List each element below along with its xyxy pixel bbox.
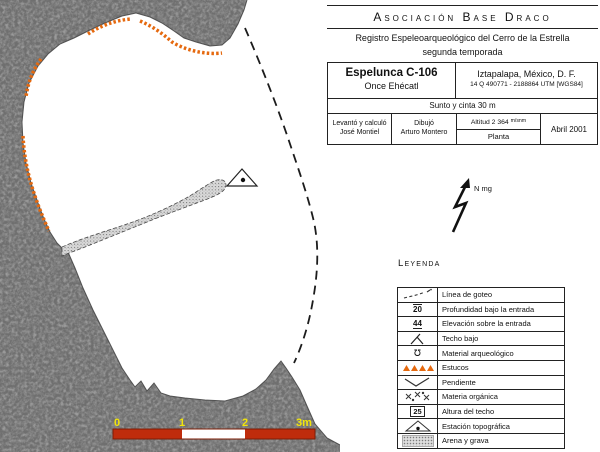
map-title-line1: Registro Espeleoarqueológico del Cerro d… bbox=[327, 31, 598, 45]
legend-row: Estación topográfica bbox=[398, 418, 564, 433]
altitude-view-cell: Altitud 2 364 m/snm Planta bbox=[457, 114, 541, 144]
survey-station-icon bbox=[398, 419, 438, 433]
cave-map: 0 1 2 3m bbox=[0, 0, 340, 452]
map-title: Registro Espeleoarqueológico del Cerro d… bbox=[327, 29, 598, 63]
legend-label: Profundidad bajo la entrada bbox=[438, 305, 564, 314]
organic-matter-icon bbox=[398, 390, 438, 404]
legend-table: Línea de goteo 20 Profundidad bajo la en… bbox=[397, 287, 565, 449]
scale-label-3m: 3m bbox=[296, 417, 312, 429]
ceiling-height-number: 25 bbox=[410, 406, 424, 417]
legend-label: Materia orgánica bbox=[438, 392, 564, 401]
organization-title: Asociación Base Draco bbox=[327, 5, 598, 29]
legend-label: Arena y grava bbox=[438, 436, 564, 445]
north-arrow: N mg bbox=[443, 176, 513, 238]
cave-name-cell: Espelunca C-106 Once Ehécatl bbox=[328, 63, 456, 98]
legend-row: Línea de goteo bbox=[398, 288, 564, 302]
slope-icon bbox=[398, 376, 438, 390]
north-arrow-head bbox=[460, 178, 470, 188]
legend-label: Pendiente bbox=[438, 378, 564, 387]
scale-label-1: 1 bbox=[179, 417, 185, 429]
legend-row: 44 Elevación sobre la entrada bbox=[398, 316, 564, 331]
legend-label: Estucos bbox=[438, 363, 564, 372]
surveyor-label: Levantó y calculó bbox=[328, 119, 391, 128]
surveyor-cell: Levantó y calculó José Montiel bbox=[328, 114, 392, 144]
legend-heading: Leyenda bbox=[398, 258, 440, 269]
elevation-number: 44 bbox=[413, 319, 422, 329]
altitude-unit: m/snm bbox=[511, 118, 527, 124]
view-type: Planta bbox=[457, 130, 540, 144]
cave-alt-name: Once Ehécatl bbox=[328, 80, 455, 92]
title-block: Asociación Base Draco Registro Espeleoar… bbox=[327, 0, 598, 145]
map-title-line2: segunda temporada bbox=[327, 45, 598, 59]
legend-label: Altura del techo bbox=[438, 407, 564, 416]
low-ceiling-icon bbox=[398, 332, 438, 346]
sand-and-gravel-icon bbox=[398, 434, 438, 448]
legend-label: Material arqueológico bbox=[438, 349, 564, 358]
drip-line-icon bbox=[398, 288, 438, 302]
location-cell: Iztapalapa, México, D. F. 14 Q 490771 - … bbox=[456, 63, 597, 98]
legend-row: Materia orgánica bbox=[398, 389, 564, 404]
depth-below-entrance-icon: 20 bbox=[398, 303, 438, 317]
legend-row: 25 Altura del techo bbox=[398, 404, 564, 419]
legend-row: Pendiente bbox=[398, 375, 564, 390]
legend-label: Techo bajo bbox=[438, 334, 564, 343]
archaeological-material-icon: ℧ bbox=[398, 346, 438, 360]
scale-label-0: 0 bbox=[114, 417, 120, 429]
legend-row: 20 Profundidad bajo la entrada bbox=[398, 302, 564, 317]
legend-row: ℧ Material arqueológico bbox=[398, 345, 564, 360]
legend-row: Techo bajo bbox=[398, 331, 564, 346]
legend-row: Estucos bbox=[398, 360, 564, 375]
north-arrow-bolt bbox=[453, 183, 467, 232]
altitude: Altitud 2 364 m/snm bbox=[457, 114, 540, 130]
drawer-label: Dibujó bbox=[392, 119, 456, 128]
scale-label-2: 2 bbox=[242, 417, 248, 429]
altitude-value: Altitud 2 364 bbox=[471, 119, 509, 126]
cave-name: Espelunca C-106 bbox=[328, 67, 455, 80]
drawer-name: Arturo Montero bbox=[392, 128, 456, 137]
elevation-above-entrance-icon: 44 bbox=[398, 317, 438, 331]
legend-label: Estación topográfica bbox=[438, 422, 564, 431]
surveyor-name: José Montiel bbox=[328, 128, 391, 137]
legend-row: Arena y grava bbox=[398, 433, 564, 448]
utm-coordinates: 14 Q 490771 - 2188864 UTM [WGS84] bbox=[456, 80, 597, 90]
pottery-glyph: ℧ bbox=[414, 349, 421, 358]
drawer-cell: Dibujó Arturo Montero bbox=[392, 114, 457, 144]
date-cell: Abril 2001 bbox=[541, 114, 597, 144]
survey-method: Sunto y cinta 30 m bbox=[327, 99, 598, 114]
legend-label: Línea de goteo bbox=[438, 290, 564, 299]
location: Iztapalapa, México, D. F. bbox=[456, 68, 597, 80]
stucco-icon bbox=[398, 361, 438, 375]
ceiling-height-icon: 25 bbox=[398, 405, 438, 419]
legend-label: Elevación sobre la entrada bbox=[438, 319, 564, 328]
depth-number: 20 bbox=[413, 304, 422, 314]
north-label: N mg bbox=[474, 184, 492, 193]
